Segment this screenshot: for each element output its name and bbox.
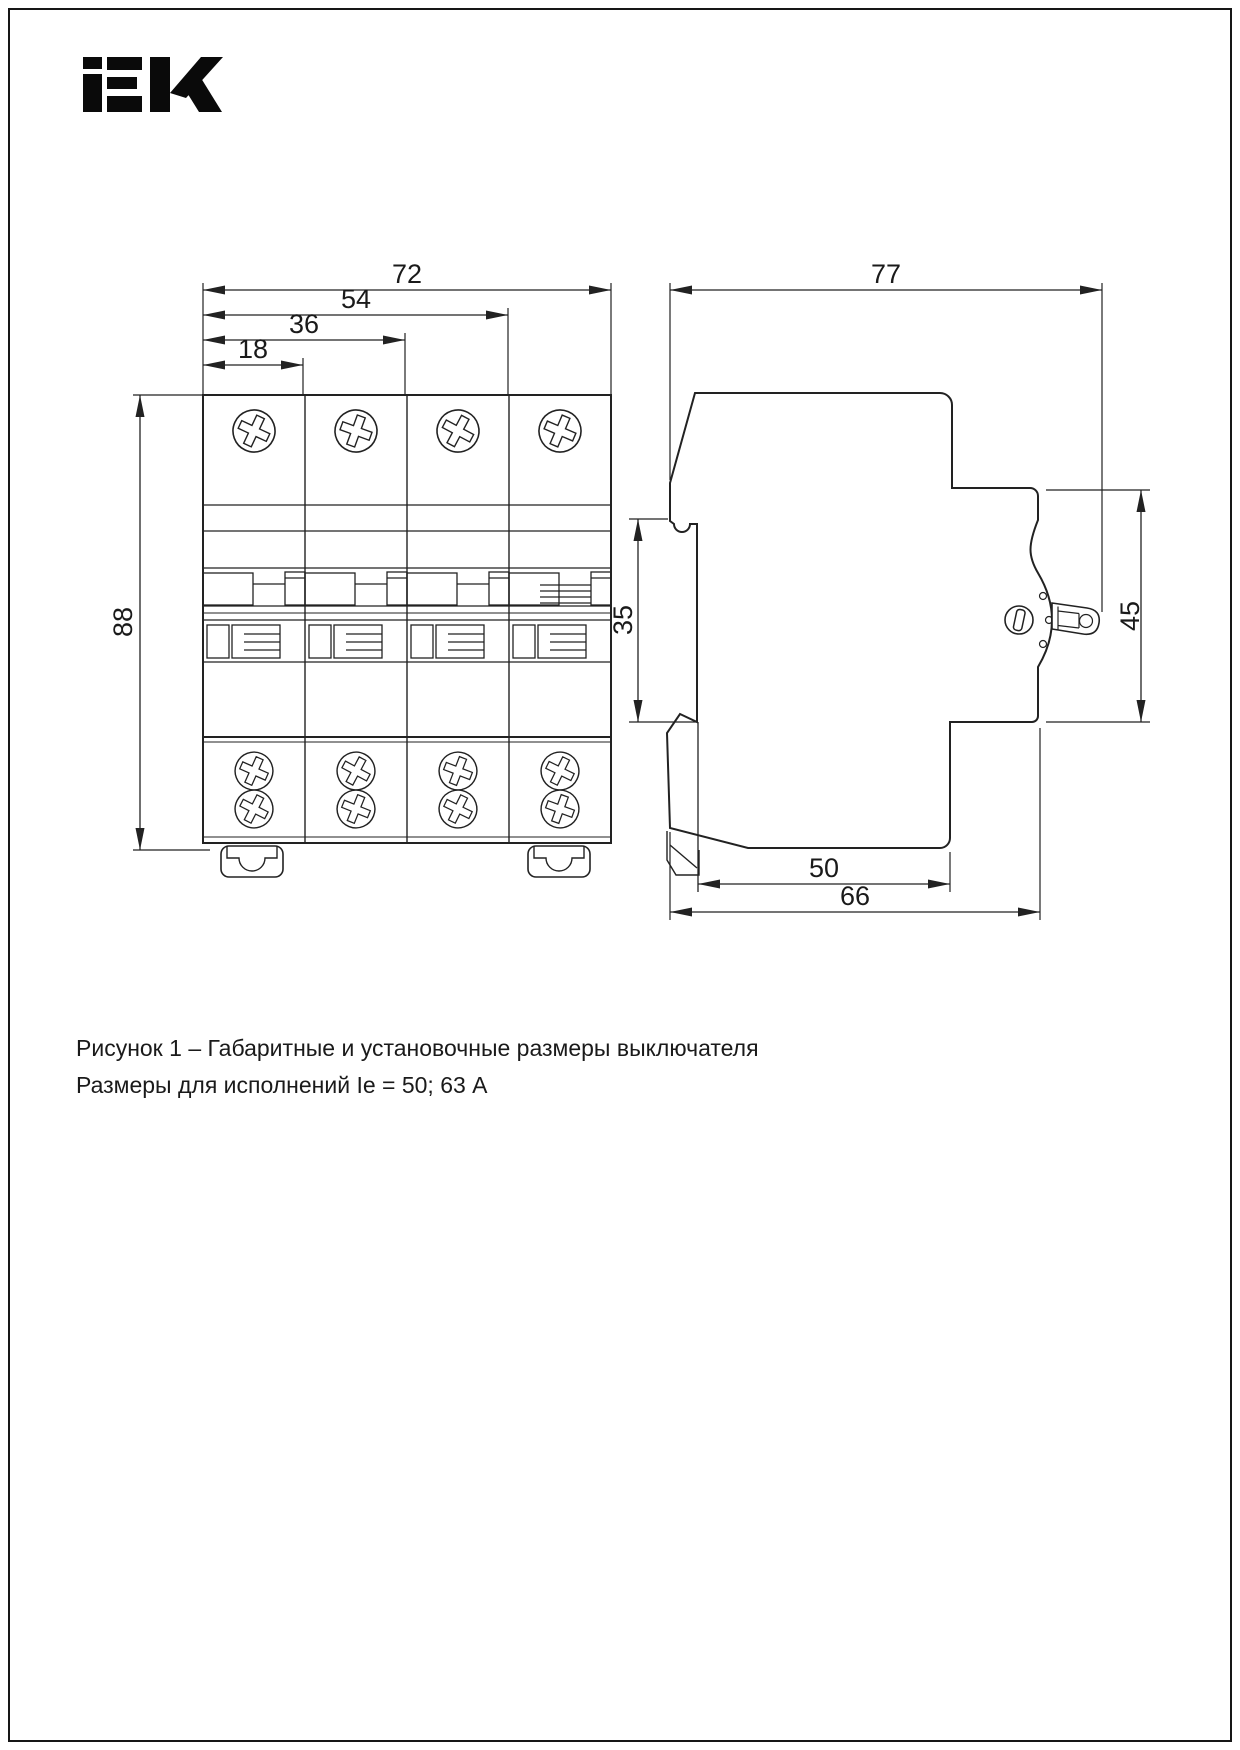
figure-caption: Рисунок 1 – Габаритные и установочные ра… [76,1030,759,1104]
dimension-54: 54 [203,284,508,320]
din-latch [667,831,699,875]
iek-logo [83,57,223,112]
logo-letter-i-dot [83,57,102,69]
screw-icon [536,785,584,833]
toggle-handle-row [203,572,305,658]
dim-label-35: 35 [608,605,638,635]
dimension-drawing: 72 54 36 18 [0,0,1240,960]
dimension-66: 66 [670,881,1040,917]
dim-label-72: 72 [392,259,422,289]
screw-icon [532,403,587,458]
dimension-45: 45 [1115,490,1146,722]
screw-icon [330,745,381,796]
dim-label-77: 77 [871,259,901,289]
module-dividers [305,395,509,843]
screw-icon [430,403,487,460]
logo-letter-i-stem [83,74,102,112]
toggle-handle-row [305,572,407,658]
screw-icon [433,784,484,835]
toggle-mechanism [1005,593,1099,648]
dimension-35: 35 [608,519,643,722]
datasheet-page: 72 54 36 18 [0,0,1240,1750]
dimension-77: 77 [670,259,1102,295]
pivot-dot [1040,593,1047,600]
dim-label-36: 36 [289,309,319,339]
calibration-screw-icon [1005,606,1033,634]
dimension-72: 72 [203,259,611,295]
logo-letter-k-stem [150,57,170,112]
screw-icon [535,746,586,797]
dimension-50: 50 [698,853,950,889]
toggle-handle-row [407,572,509,658]
breaker-body-side-profile [667,393,1052,848]
screw-icon [434,747,483,796]
figure-caption-line1: Рисунок 1 – Габаритные и установочные ра… [76,1030,759,1067]
dimension-36: 36 [203,309,405,345]
pivot-dot [1040,641,1047,648]
figure-caption-line2: Размеры для исполнений Ie = 50; 63 А [76,1067,759,1104]
screw-slot [1013,609,1026,631]
screw-icon [229,784,280,835]
dim-label-88: 88 [108,607,138,637]
screw-icon [226,403,282,459]
logo-letter-e-bar [107,96,142,112]
logo-letter-e-bar [107,77,137,89]
din-rail-clip [528,846,590,877]
logo-letter-e-bar [107,57,142,70]
screw-icon [331,784,380,833]
dim-label-54: 54 [341,284,371,314]
screw-icon [229,746,279,796]
front-view: 72 54 36 18 [108,259,611,877]
dimension-88: 88 [108,395,145,850]
screw-icon [329,404,383,458]
dim-label-45: 45 [1115,601,1145,631]
dim-label-66: 66 [840,881,870,911]
toggle-handle-row-4 [509,572,611,658]
side-extension-lines [629,283,1150,920]
din-rail-clip [221,846,283,877]
dim-label-50: 50 [809,853,839,883]
dim-label-18: 18 [238,334,268,364]
side-view: 77 35 45 50 [608,259,1150,920]
